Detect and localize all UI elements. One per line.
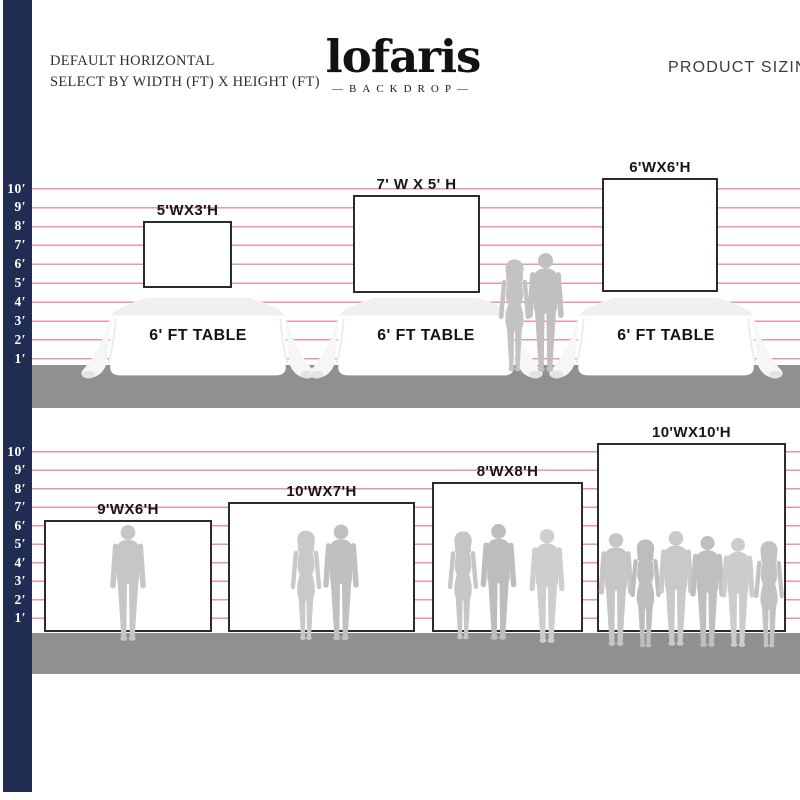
person-silhouette-man <box>598 533 633 646</box>
header-mode: DEFAULT HORIZONTAL SELECT BY WIDTH (FT) … <box>50 51 320 93</box>
ruler-tick: 1′ <box>0 350 29 369</box>
brand-logo: lofaris —BACKDROP— <box>303 32 503 95</box>
ruler-tick: 6′ <box>0 255 29 274</box>
person-silhouette-9x6 <box>96 522 160 644</box>
brand-tagline: —BACKDROP— <box>303 83 503 95</box>
ruler-tick: 8′ <box>0 217 29 236</box>
group-silhouette-10x10 <box>595 528 791 652</box>
backdrop-size-label: 6'WX6'H <box>629 159 691 176</box>
group-silhouette-8x8 <box>441 516 573 646</box>
ruler-tick: 4′ <box>0 554 29 573</box>
couple-silhouette-row1 <box>486 250 570 374</box>
ruler-tick: 7′ <box>0 498 29 517</box>
ruler-tick: 3′ <box>0 312 29 331</box>
backdrop-size-label: 8'WX8'H <box>477 463 539 480</box>
person-silhouette-woman <box>754 541 784 647</box>
ruler-tick: 7′ <box>0 236 29 255</box>
backdrop-size-label: 10'WX7'H <box>286 483 356 500</box>
product-sizing-chart: DEFAULT HORIZONTAL SELECT BY WIDTH (FT) … <box>0 0 800 800</box>
backdrop-7x5: 7' W X 5' H <box>353 195 480 293</box>
backdrop-5x3: 5'WX3'H <box>143 221 232 288</box>
height-ruler-row2: 10′ 9′ 8′ 7′ 6′ 5′ 4′ 3′ 2′ 1′ <box>0 443 29 628</box>
ruler-tick: 2′ <box>0 331 29 350</box>
page-title: PRODUCT SIZING <box>668 59 800 77</box>
person-silhouette-woman <box>630 539 661 647</box>
backdrop-6x6: 6'WX6'H <box>602 178 718 292</box>
ruler-tick: 5′ <box>0 535 29 554</box>
couple-silhouette-10x7 <box>280 518 368 646</box>
ruler-tick: 4′ <box>0 293 29 312</box>
person-silhouette-man <box>323 525 359 641</box>
ruler-tick: 10′ <box>0 443 29 462</box>
backdrop-size-label: 7' W X 5' H <box>377 176 457 193</box>
ruler-tick: 2′ <box>0 591 29 610</box>
brand-name: lofaris <box>303 32 503 82</box>
person-silhouette-man <box>721 538 755 647</box>
person-silhouette-man <box>658 531 694 646</box>
ruler-tick: 5′ <box>0 274 29 293</box>
person-silhouette-woman <box>499 259 531 371</box>
person-silhouette-man <box>529 529 564 643</box>
ruler-tick: 10′ <box>0 180 29 199</box>
person-silhouette-woman <box>291 531 322 640</box>
ruler-tick: 3′ <box>0 572 29 591</box>
height-ruler-row1: 10′ 9′ 8′ 7′ 6′ 5′ 4′ 3′ 2′ 1′ <box>0 180 29 369</box>
backdrop-size-label: 5'WX3'H <box>157 202 219 219</box>
ruler-tick: 9′ <box>0 198 29 217</box>
header-mode-line2: SELECT BY WIDTH (FT) X HEIGHT (FT) <box>50 72 320 93</box>
person-silhouette-woman <box>448 531 479 639</box>
ruler-tick: 8′ <box>0 480 29 499</box>
person-silhouette-man <box>690 536 724 647</box>
table-label: 6' FT TABLE <box>377 327 475 344</box>
person-silhouette-man <box>527 253 564 372</box>
ruler-tick: 6′ <box>0 517 29 536</box>
header-mode-line1: DEFAULT HORIZONTAL <box>50 51 320 72</box>
ruler-tick: 9′ <box>0 461 29 480</box>
person-silhouette-man <box>110 525 146 641</box>
table-label: 6' FT TABLE <box>149 327 247 344</box>
ruler-tick: 1′ <box>0 609 29 628</box>
table-label: 6' FT TABLE <box>617 327 715 344</box>
ruler-bar <box>3 0 32 792</box>
person-silhouette-man <box>480 524 516 640</box>
backdrop-size-label: 10'WX10'H <box>652 424 731 441</box>
backdrop-size-label: 9'WX6'H <box>97 501 159 518</box>
